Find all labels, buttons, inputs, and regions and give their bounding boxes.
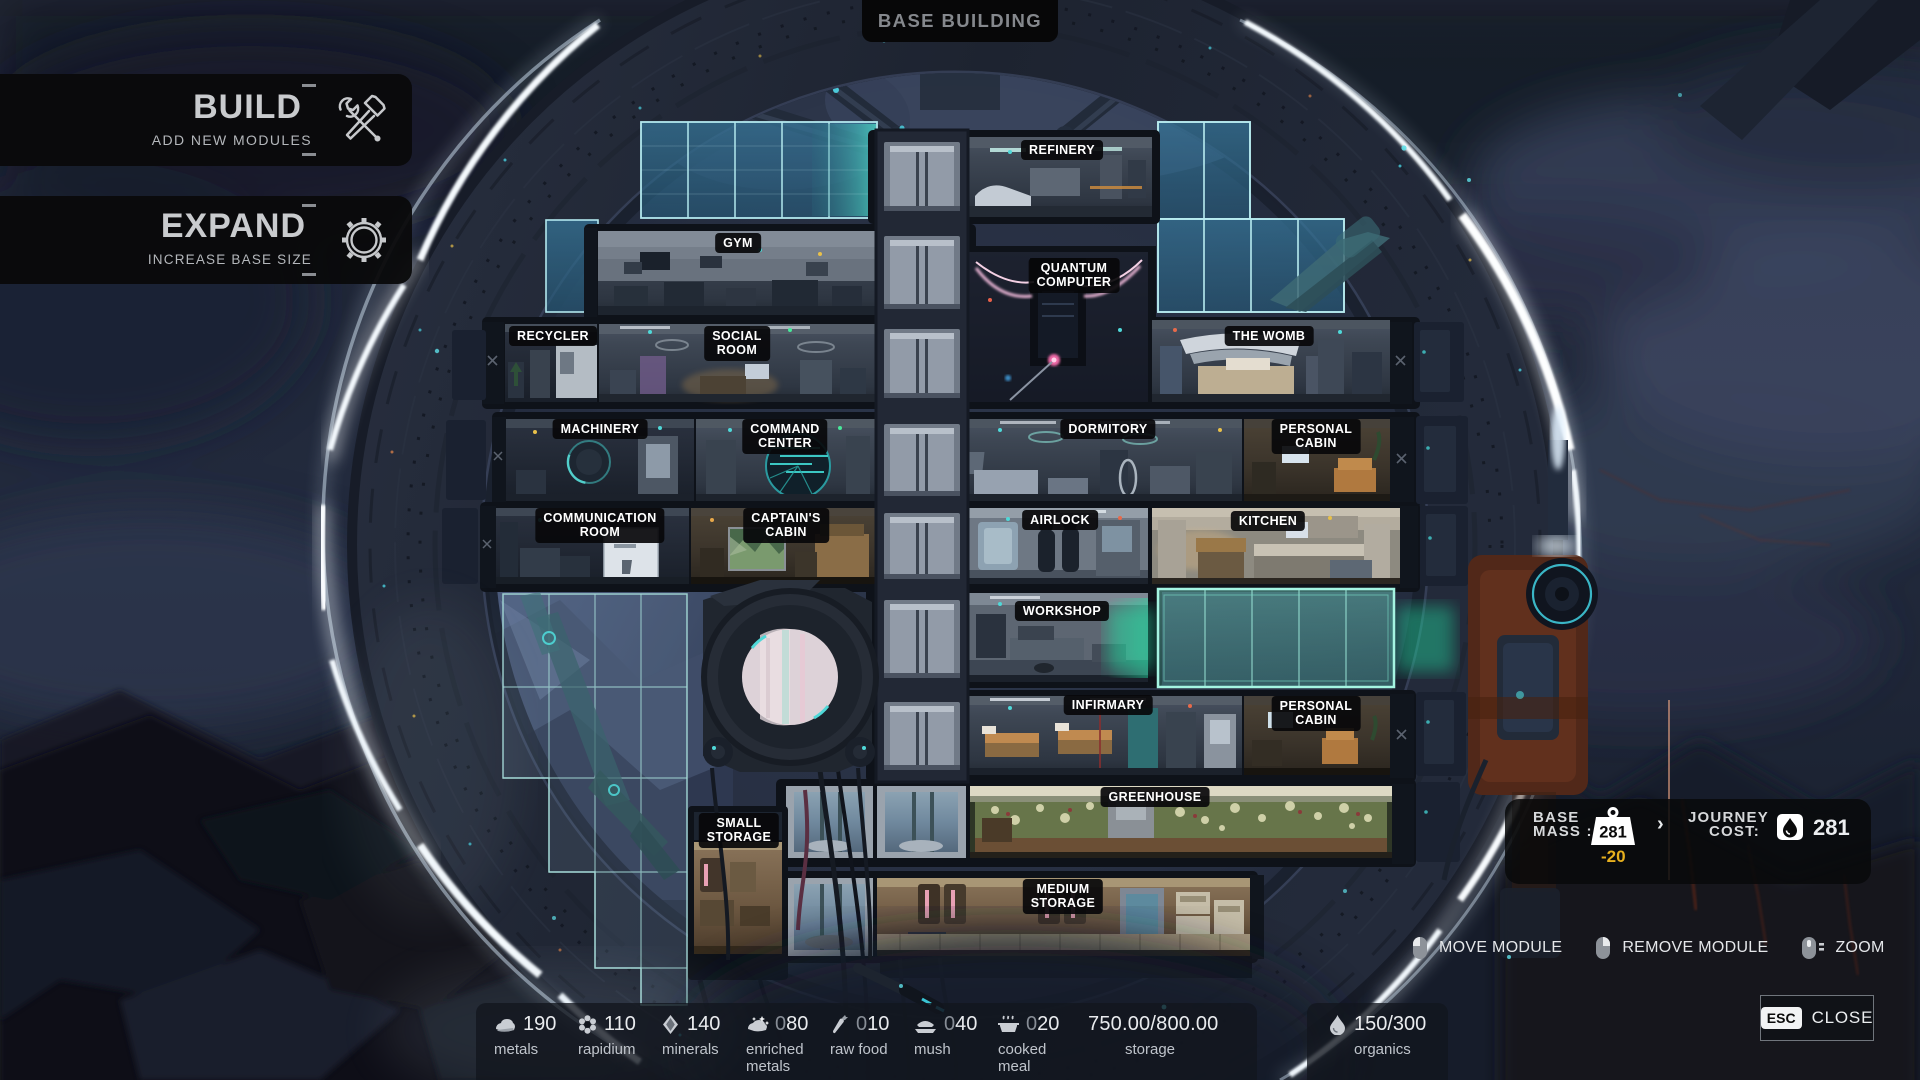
svg-text:281: 281 <box>1599 824 1627 842</box>
